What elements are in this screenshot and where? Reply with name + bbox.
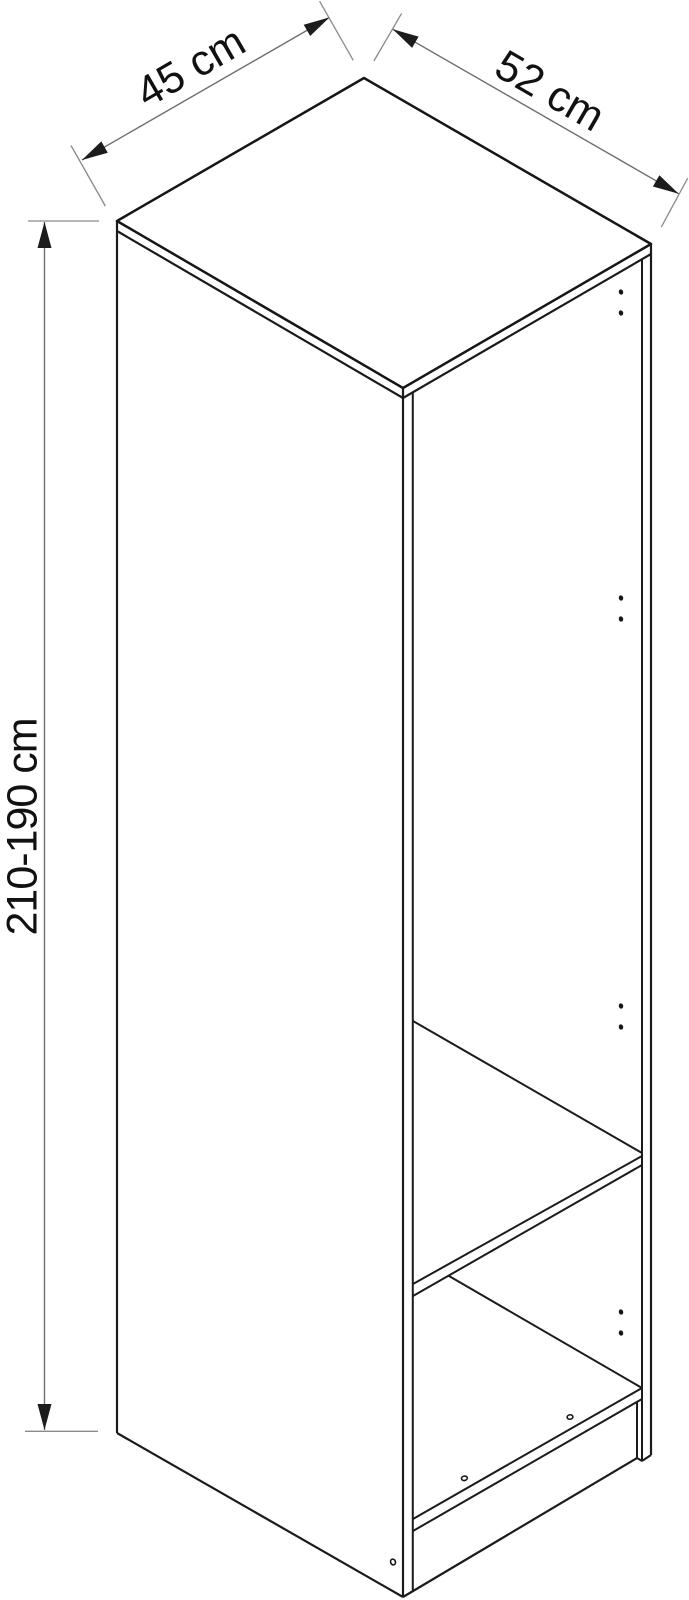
svg-text:210-190 cm: 210-190 cm xyxy=(0,718,47,935)
